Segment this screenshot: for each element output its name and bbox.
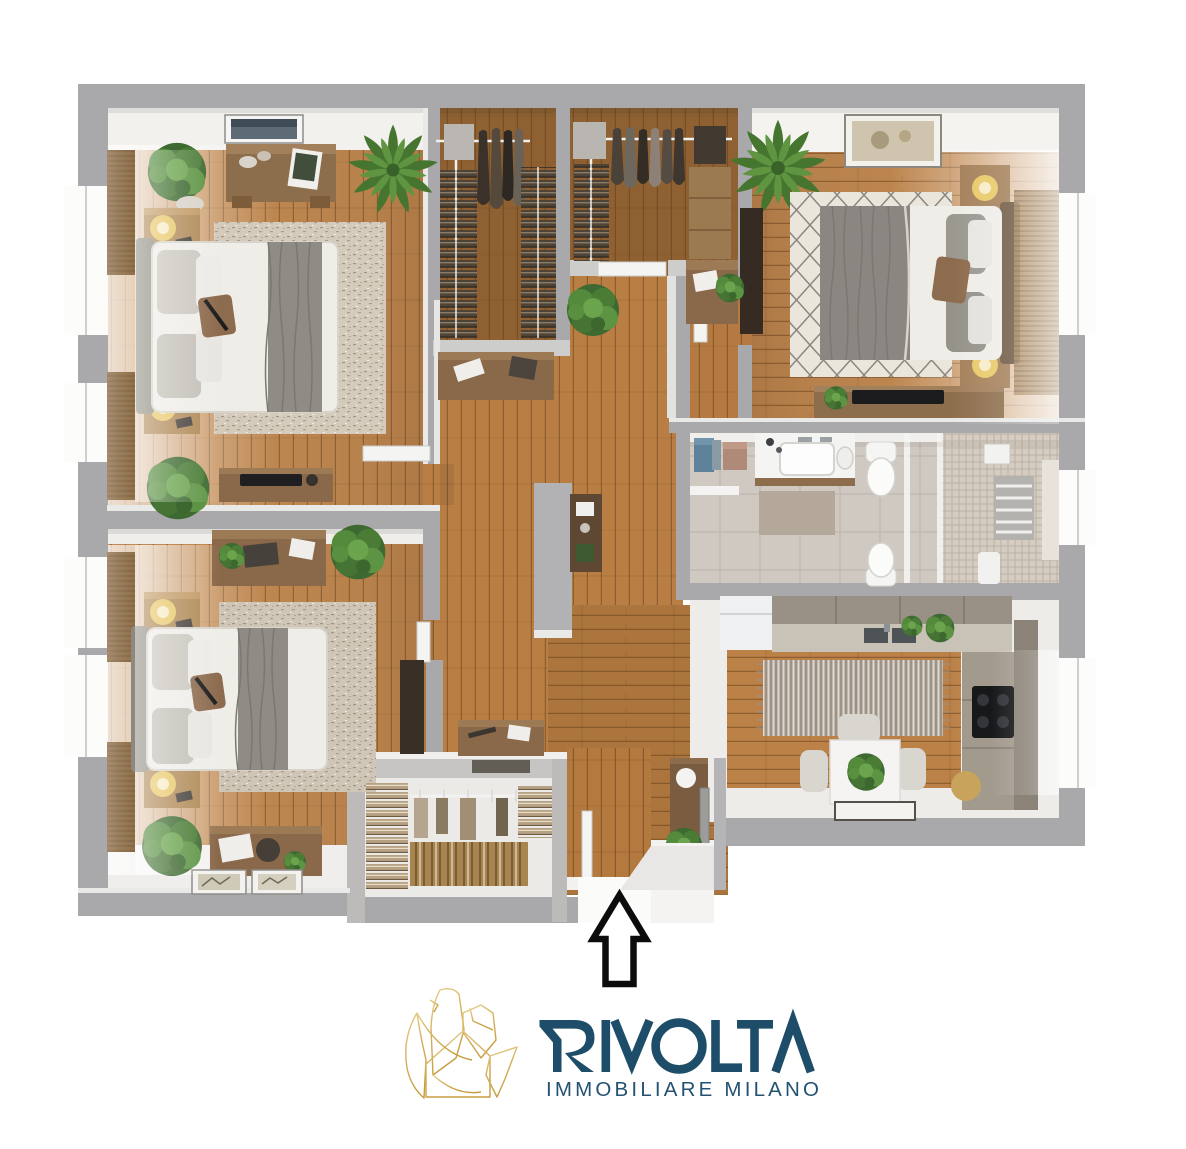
svg-text:IMMOBILIARE MILANO: IMMOBILIARE MILANO <box>546 1078 819 1101</box>
